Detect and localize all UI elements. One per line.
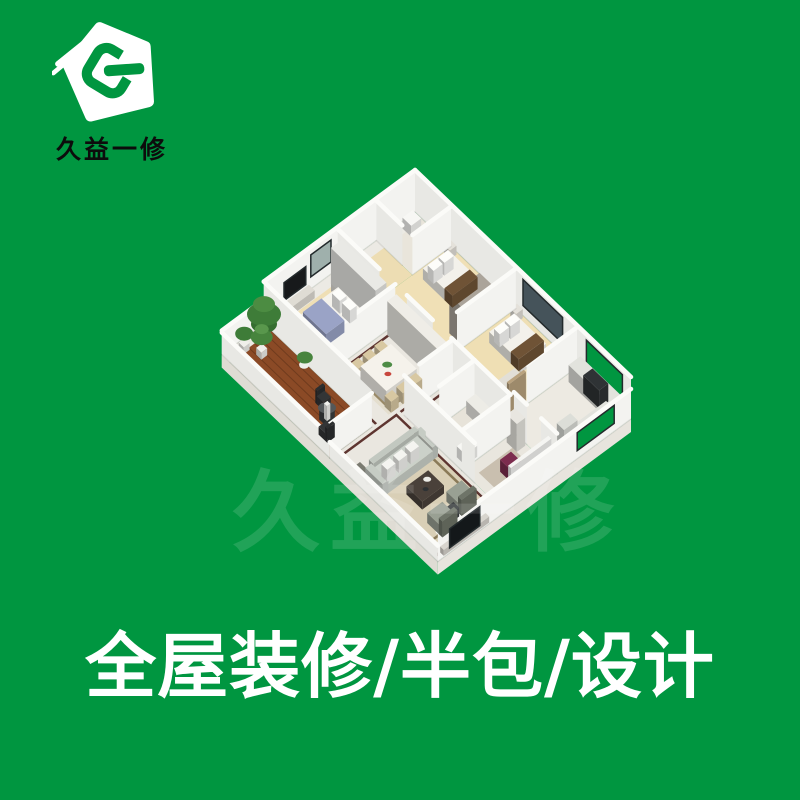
plant-foliage (255, 324, 269, 334)
coffee-tray (423, 477, 431, 482)
teapot (324, 401, 330, 421)
table-greens (382, 362, 392, 368)
table-dish (384, 372, 391, 376)
plant-foliage (297, 352, 313, 364)
headline-text: 全屋装修/半包/设计 (0, 610, 800, 712)
coffee-tray (423, 487, 429, 491)
plant-foliage (253, 296, 275, 312)
ad-canvas: 久益一修 久益一修 全屋装修/半包/设计 (0, 0, 800, 800)
plant-foliage (235, 327, 253, 341)
